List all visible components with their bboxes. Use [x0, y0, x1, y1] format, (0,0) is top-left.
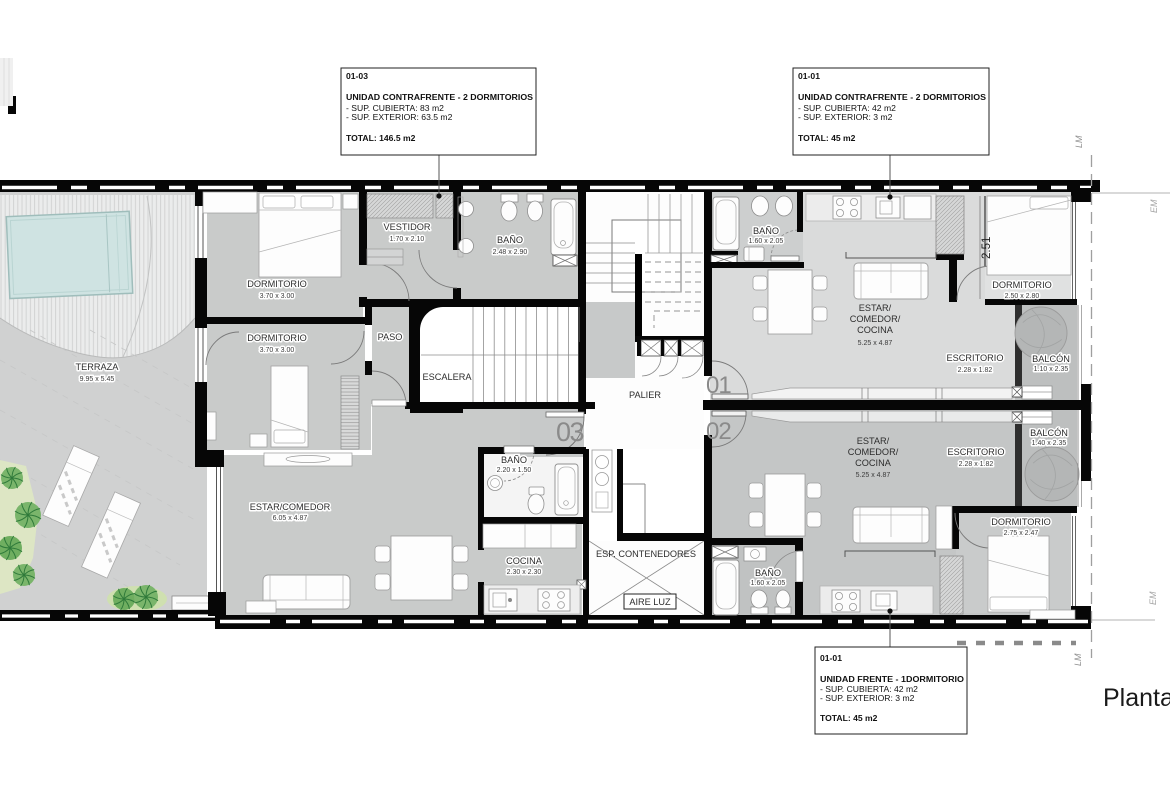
svg-text:01-01: 01-01 [820, 653, 842, 663]
svg-text:ESCRITORIO: ESCRITORIO [946, 353, 1003, 363]
svg-text:01-01: 01-01 [798, 71, 820, 81]
svg-text:1.60 x 2.05: 1.60 x 2.05 [751, 580, 786, 587]
svg-text:VESTIDOR: VESTIDOR [384, 222, 431, 232]
svg-text:TERRAZA: TERRAZA [76, 362, 120, 372]
svg-text:TOTAL: 146.5 m2: TOTAL: 146.5 m2 [346, 133, 416, 143]
svg-text:2.48 x 2.90: 2.48 x 2.90 [493, 249, 528, 256]
svg-text:2.51: 2.51 [981, 237, 993, 259]
svg-text:1.60 x 2.05: 1.60 x 2.05 [749, 238, 784, 245]
svg-text:COCINA: COCINA [855, 458, 892, 468]
svg-text:2.28 x 1.82: 2.28 x 1.82 [958, 367, 993, 374]
svg-text:DORMITORIO: DORMITORIO [991, 517, 1051, 527]
svg-text:EM: EM [1149, 199, 1159, 213]
svg-text:BAÑO: BAÑO [501, 455, 527, 465]
svg-text:COMEDOR/: COMEDOR/ [848, 447, 899, 457]
svg-text:UNIDAD FRENTE - 1DORMITORIO: UNIDAD FRENTE - 1DORMITORIO [820, 674, 964, 684]
svg-text:BAÑO: BAÑO [755, 568, 781, 578]
svg-text:01-03: 01-03 [346, 71, 368, 81]
svg-text:ESTAR/COMEDOR: ESTAR/COMEDOR [250, 502, 331, 512]
svg-text:- SUP. EXTERIOR: 3 m2: - SUP. EXTERIOR: 3 m2 [798, 112, 893, 122]
svg-text:COCINA: COCINA [506, 556, 543, 566]
svg-text:ESTAR/: ESTAR/ [857, 436, 890, 446]
svg-text:TOTAL: 45 m2: TOTAL: 45 m2 [820, 713, 878, 723]
svg-text:LM: LM [1074, 135, 1084, 148]
svg-text:2.20 x 1.50: 2.20 x 1.50 [497, 467, 532, 474]
svg-text:9.95 x 5.45: 9.95 x 5.45 [80, 376, 115, 383]
svg-text:2.50 x 2.80: 2.50 x 2.80 [1005, 293, 1040, 300]
svg-text:TOTAL: 45 m2: TOTAL: 45 m2 [798, 133, 856, 143]
svg-text:ESCALERA: ESCALERA [422, 372, 472, 382]
svg-text:2.75 x 2.47: 2.75 x 2.47 [1004, 530, 1039, 537]
svg-text:5.25 x 4.87: 5.25 x 4.87 [858, 340, 893, 347]
svg-text:1.70 x 2.10: 1.70 x 2.10 [390, 236, 425, 243]
svg-text:DORMITORIO: DORMITORIO [247, 279, 307, 289]
svg-text:UNIDAD CONTRAFRENTE - 2 DORMIT: UNIDAD CONTRAFRENTE - 2 DORMITORIOS [798, 92, 986, 102]
svg-text:COMEDOR/: COMEDOR/ [850, 314, 901, 324]
svg-text:2.30 x 2.30: 2.30 x 2.30 [507, 569, 542, 576]
svg-text:ESCRITORIO: ESCRITORIO [947, 447, 1004, 457]
svg-text:01: 01 [706, 372, 731, 399]
svg-text:ESTAR/: ESTAR/ [859, 303, 892, 313]
svg-text:PALIER: PALIER [629, 390, 661, 400]
svg-text:5.25 x 4.87: 5.25 x 4.87 [856, 472, 891, 479]
svg-text:1.10 x 2.35: 1.10 x 2.35 [1034, 366, 1069, 373]
svg-text:Planta: Planta [1103, 684, 1170, 712]
svg-text:03: 03 [556, 417, 584, 447]
svg-text:2.28 x 1.82: 2.28 x 1.82 [959, 461, 994, 468]
svg-text:BAÑO: BAÑO [497, 235, 523, 245]
svg-text:6.05 x 4.87: 6.05 x 4.87 [273, 515, 308, 522]
svg-text:DORMITORIO: DORMITORIO [992, 280, 1052, 290]
svg-text:ESP. CONTENEDORES: ESP. CONTENEDORES [596, 549, 696, 559]
svg-text:LM: LM [1073, 653, 1083, 666]
svg-text:02: 02 [706, 418, 731, 445]
svg-text:COCINA: COCINA [857, 325, 894, 335]
svg-text:EM: EM [1148, 591, 1158, 605]
svg-text:DORMITORIO: DORMITORIO [247, 333, 307, 343]
svg-text:UNIDAD CONTRAFRENTE - 2 DORMIT: UNIDAD CONTRAFRENTE - 2 DORMITORIOS [346, 92, 533, 102]
svg-text:- SUP. EXTERIOR: 3 m2: - SUP. EXTERIOR: 3 m2 [820, 693, 915, 703]
svg-text:3.70 x 3.00: 3.70 x 3.00 [260, 293, 295, 300]
svg-text:3.70 x 3.00: 3.70 x 3.00 [260, 347, 295, 354]
svg-text:BAÑO: BAÑO [753, 226, 779, 236]
svg-text:BALCÓN: BALCÓN [1030, 428, 1068, 438]
svg-text:1.40 x 2.35: 1.40 x 2.35 [1032, 440, 1067, 447]
svg-text:BALCÓN: BALCÓN [1032, 354, 1070, 364]
svg-text:AIRE LUZ: AIRE LUZ [629, 597, 671, 607]
svg-text:- SUP. EXTERIOR: 63.5 m2: - SUP. EXTERIOR: 63.5 m2 [346, 112, 453, 122]
svg-text:PASO: PASO [378, 332, 403, 342]
